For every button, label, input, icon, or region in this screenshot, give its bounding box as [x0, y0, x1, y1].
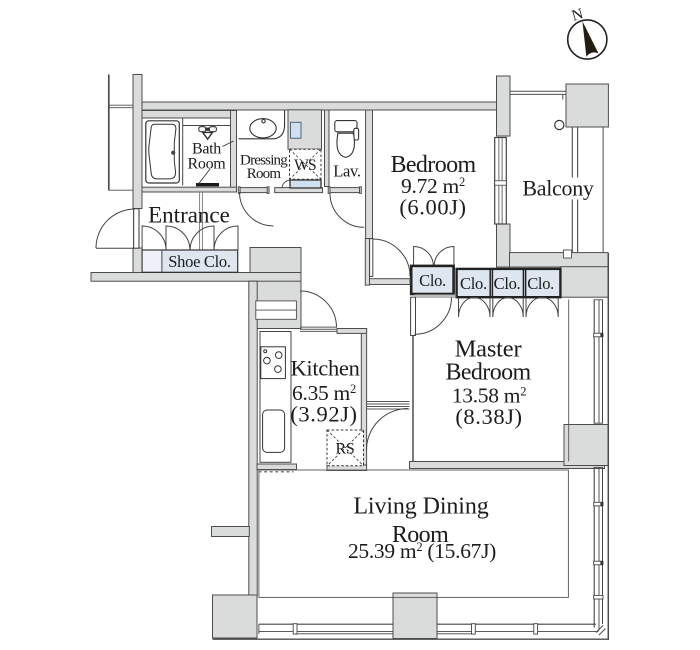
svg-text:Clo.: Clo. [494, 274, 521, 293]
svg-text:(6.00J): (6.00J) [399, 195, 466, 220]
svg-text:Clo.: Clo. [460, 274, 487, 293]
svg-text:25.39 m2 (15.67J): 25.39 m2 (15.67J) [348, 539, 496, 563]
svg-text:Clo.: Clo. [419, 271, 446, 290]
svg-text:Living Dining: Living Dining [353, 494, 488, 520]
svg-text:Room: Room [188, 156, 227, 173]
svg-text:Kitchen: Kitchen [290, 356, 359, 381]
svg-text:Room: Room [247, 166, 282, 182]
svg-text:Bedroom: Bedroom [445, 360, 531, 386]
svg-text:Lav.: Lav. [333, 162, 361, 181]
svg-text:WS: WS [294, 157, 316, 174]
svg-text:RS: RS [336, 441, 355, 458]
svg-text:Clo.: Clo. [527, 274, 554, 293]
svg-text:(8.38J): (8.38J) [455, 404, 522, 429]
svg-text:Entrance: Entrance [148, 203, 230, 228]
svg-text:Master: Master [455, 336, 522, 363]
svg-text:Shoe Clo.: Shoe Clo. [168, 252, 231, 271]
svg-text:(3.92J): (3.92J) [290, 402, 357, 427]
svg-text:Balcony: Balcony [522, 176, 594, 201]
